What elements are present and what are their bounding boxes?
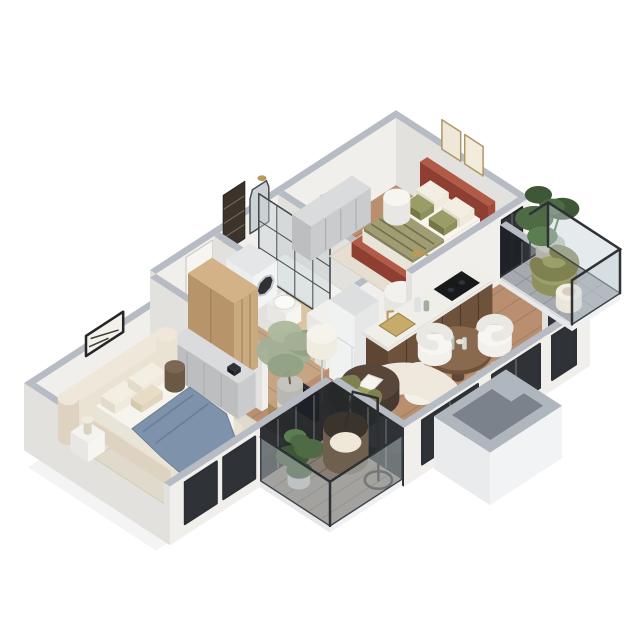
table-plate xyxy=(456,339,464,344)
egg-chair-cushion xyxy=(330,432,362,453)
toilet-lid xyxy=(274,295,295,309)
bath-sconce xyxy=(258,175,267,181)
cooktop-burner xyxy=(447,288,454,292)
table-bottle xyxy=(462,337,467,340)
wall-bedroom1-south xyxy=(164,483,170,546)
nightstand-bedroom2 xyxy=(383,189,410,207)
kitchen-jar xyxy=(414,297,421,301)
nightstand-lamp-shade xyxy=(81,416,93,424)
floor-lamp-shade xyxy=(307,324,338,344)
wall-bedroom1-back xyxy=(24,383,30,454)
tree-foliage xyxy=(268,354,304,378)
monstera-leaf xyxy=(290,434,310,447)
floor-plan-canvas xyxy=(0,0,640,629)
bed1-headboard-cap-right xyxy=(156,327,177,341)
kitchen-plant xyxy=(424,300,430,304)
cooktop-burner xyxy=(459,280,466,284)
wall-living-west xyxy=(404,424,410,487)
bed1-headboard-cap-left xyxy=(58,391,79,405)
bedside-stool xyxy=(165,360,185,373)
floor-plan-3d-render xyxy=(0,0,640,629)
gold-lamp-head xyxy=(412,250,423,257)
